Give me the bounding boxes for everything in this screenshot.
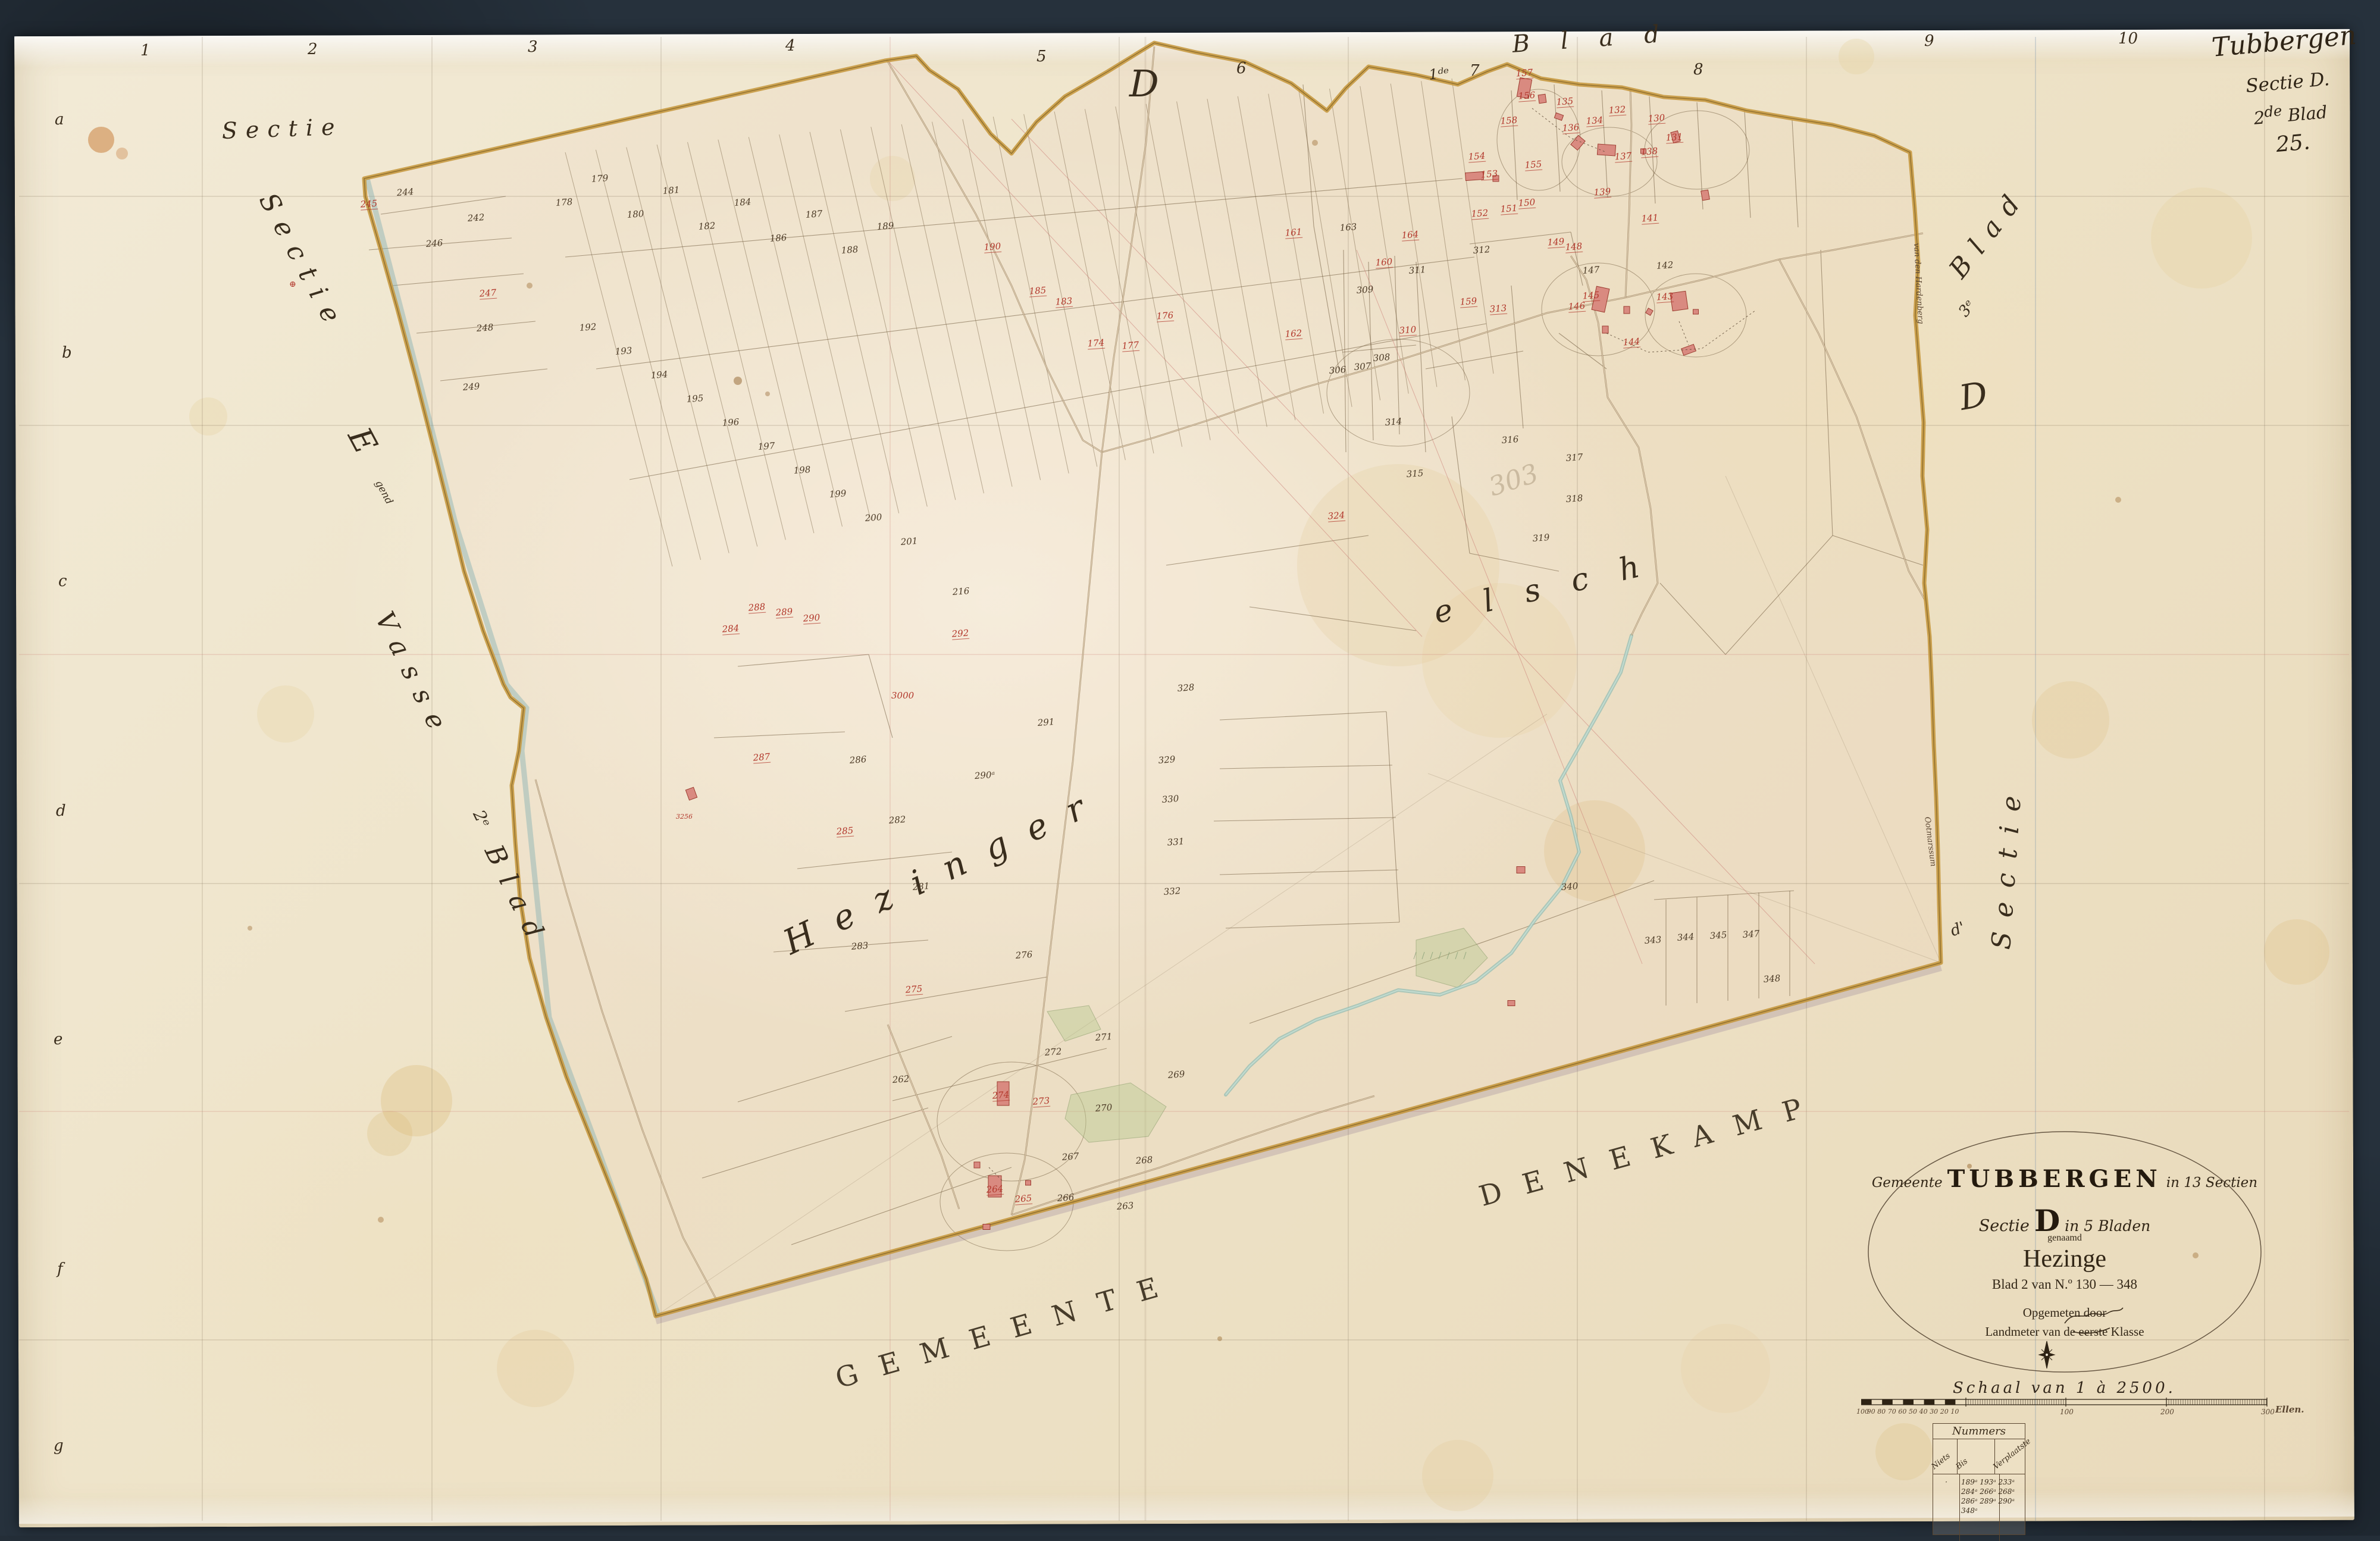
bis-cell: 189ᵃ 193ᵃ 233ᵃ	[1961, 1478, 1998, 1486]
col-niets-label: Niets	[1930, 1452, 1952, 1471]
col-verplaatste: Verplaatste	[1995, 1439, 2025, 1474]
col-bis: Bis	[1958, 1439, 1995, 1474]
nummers-table: Nummers Niets Bis Verplaatste · 189ᵃ 193…	[1933, 1423, 2025, 1535]
bis-cell: 286ᵃ 289ᵃ 290ᵃ	[1961, 1497, 1998, 1505]
nummers-table-headers: Niets Bis Verplaatste	[1933, 1439, 2025, 1474]
niets-cells: ·	[1933, 1474, 1960, 1541]
niets-cell: ·	[1934, 1478, 1958, 1486]
nummers-table-body: · 189ᵃ 193ᵃ 233ᵃ284ᵃ 266ᵃ 268ᵃ286ᵃ 289ᵃ …	[1933, 1474, 2025, 1541]
nummers-table-title: Nummers	[1933, 1424, 2025, 1439]
scanned-cadastral-map: 12345678910abcdefgSectieD1ᵈᵉBladBlad3ᵉDS…	[0, 0, 2380, 1536]
bis-cells: 189ᵃ 193ᵃ 233ᵃ284ᵃ 266ᵃ 268ᵃ286ᵃ 289ᵃ 29…	[1960, 1474, 2000, 1541]
bis-cell: 284ᵃ 266ᵃ 268ᵃ	[1961, 1487, 1998, 1496]
verplaatste-cells	[2000, 1474, 2025, 1541]
scale-bar	[0, 0, 2380, 1536]
col-niets: Niets	[1933, 1439, 1958, 1474]
bis-cell: 348ᵃ	[1961, 1506, 1998, 1515]
